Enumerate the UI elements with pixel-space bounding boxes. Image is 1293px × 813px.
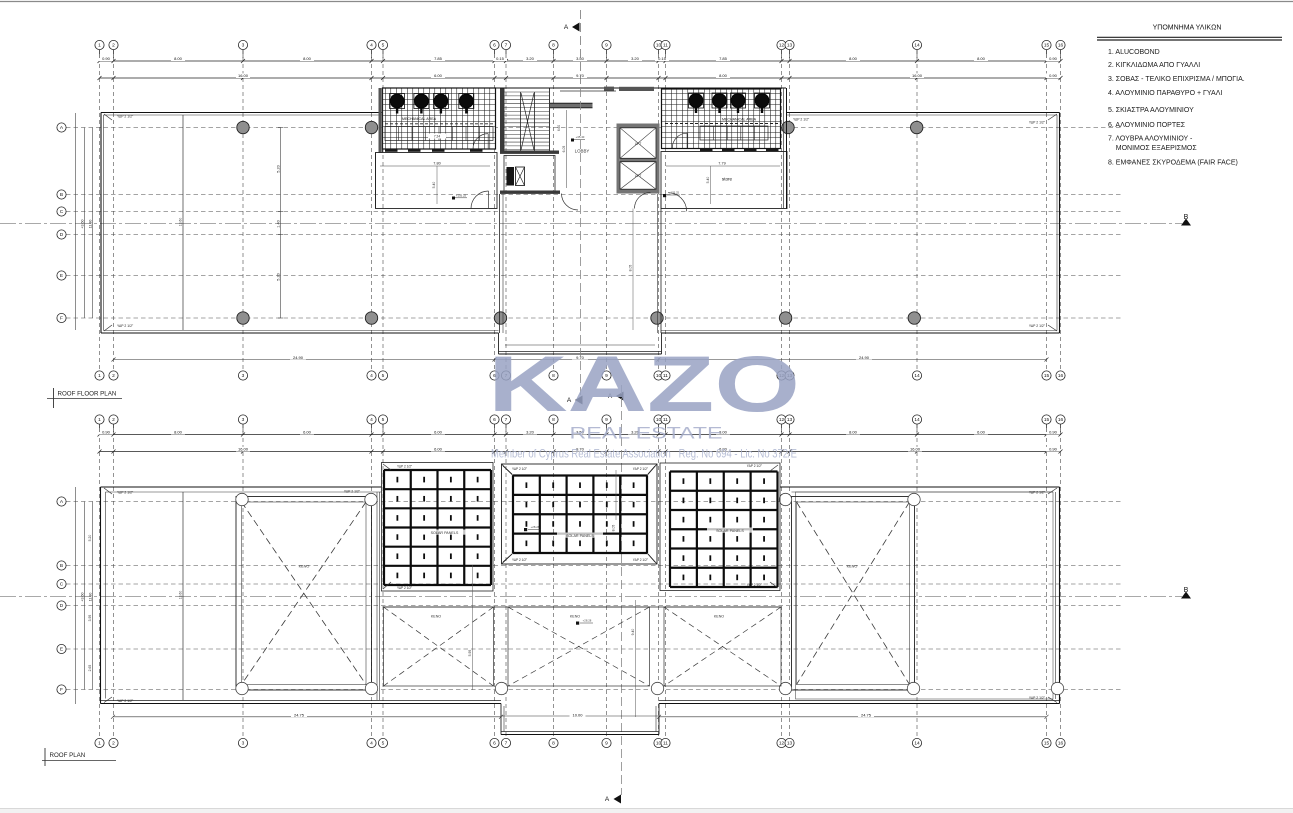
- svg-text:ΥΔΡ 2 1/2": ΥΔΡ 2 1/2": [633, 467, 648, 471]
- svg-text:ΥΔΡ 2 1/2": ΥΔΡ 2 1/2": [117, 115, 134, 119]
- svg-text:14: 14: [914, 43, 920, 49]
- svg-text:4: 4: [370, 741, 373, 747]
- svg-text:SOLAR PANELS: SOLAR PANELS: [716, 529, 744, 533]
- svg-text:2: 2: [112, 741, 115, 747]
- svg-text:ΥΠΟΜΝΗΜΑ ΥΛΙΚΩΝ: ΥΠΟΜΝΗΜΑ ΥΛΙΚΩΝ: [1153, 25, 1222, 32]
- svg-text:24.90: 24.90: [293, 355, 304, 360]
- svg-text:6.00: 6.00: [303, 429, 312, 434]
- svg-text:13: 13: [787, 741, 793, 747]
- svg-text:1: 1: [98, 741, 101, 747]
- svg-text:ΥΔΡ 2 1/2": ΥΔΡ 2 1/2": [1029, 324, 1046, 328]
- svg-text:D: D: [60, 232, 64, 238]
- svg-text:ΥΔΡ 2 1/2": ΥΔΡ 2 1/2": [512, 558, 527, 562]
- svg-text:8.00: 8.00: [849, 56, 858, 61]
- svg-text:16: 16: [1058, 417, 1064, 423]
- svg-text:0.90: 0.90: [1049, 73, 1058, 78]
- svg-text:3: 3: [242, 43, 245, 49]
- svg-text:C: C: [60, 209, 64, 215]
- svg-text:ΜΟΝΙΜΟΣ ΕΞΑΕΡΙΣΜΟΣ: ΜΟΝΙΜΟΣ ΕΞΑΕΡΙΣΜΟΣ: [1108, 145, 1197, 152]
- svg-text:ROOF FLOOR PLAN: ROOF FLOOR PLAN: [58, 391, 117, 398]
- svg-text:2: 2: [112, 417, 115, 423]
- svg-text:6.00: 6.00: [434, 73, 443, 78]
- svg-text:6.05: 6.05: [562, 146, 566, 153]
- svg-text:11: 11: [663, 43, 668, 49]
- svg-text:2: 2: [112, 373, 115, 379]
- svg-text:7: 7: [505, 43, 508, 49]
- svg-text:8.00: 8.00: [303, 56, 312, 61]
- svg-text:16.00: 16.00: [912, 73, 923, 78]
- svg-text:3.20: 3.20: [631, 56, 640, 61]
- svg-text:MECHANICAL AREA: MECHANICAL AREA: [402, 117, 437, 121]
- svg-text:7: 7: [505, 741, 508, 747]
- svg-text:KAZO: KAZO: [488, 339, 800, 428]
- svg-text:KENO: KENO: [714, 615, 724, 619]
- svg-text:B: B: [60, 563, 63, 569]
- svg-text:0.90: 0.90: [102, 429, 111, 434]
- svg-text:8.00: 8.00: [174, 56, 183, 61]
- svg-text:E: E: [60, 273, 63, 279]
- svg-text:A: A: [564, 24, 569, 31]
- svg-text:8: 8: [552, 43, 555, 49]
- svg-text:+105.25: +105.25: [456, 193, 467, 197]
- svg-text:F: F: [60, 687, 63, 693]
- svg-text:3: 3: [242, 741, 245, 747]
- svg-text:1. ALUCOBOND: 1. ALUCOBOND: [1108, 49, 1160, 56]
- svg-text:SOLAR PANELS: SOLAR PANELS: [431, 531, 459, 535]
- svg-text:13.60: 13.60: [179, 591, 183, 600]
- svg-text:2. ΚΙΓΚΛΙΔΩΜΑ ΑΠΟ ΓΥΑΛΛΙ: 2. ΚΙΓΚΛΙΔΩΜΑ ΑΠΟ ΓΥΑΛΛΙ: [1108, 62, 1200, 69]
- svg-text:7.85: 7.85: [434, 56, 443, 61]
- svg-text:+3.60: +3.60: [81, 219, 85, 228]
- svg-text:14: 14: [914, 373, 920, 379]
- svg-text:13: 13: [787, 43, 793, 49]
- svg-text:+3.60: +3.60: [81, 592, 85, 601]
- svg-text:KENO: KENO: [570, 615, 580, 619]
- svg-text:3: 3: [242, 373, 245, 379]
- svg-text:10.00: 10.00: [572, 712, 583, 717]
- svg-text:11.80: 11.80: [89, 220, 93, 229]
- svg-text:LIFT: LIFT: [635, 174, 642, 178]
- svg-text:3.20: 3.20: [526, 56, 535, 61]
- svg-text:LIFT: LIFT: [635, 142, 642, 146]
- svg-text:1: 1: [98, 43, 101, 49]
- svg-text:8.00: 8.00: [849, 429, 858, 434]
- svg-text:15: 15: [1044, 43, 1050, 49]
- svg-text:7.85: 7.85: [719, 56, 728, 61]
- svg-text:4: 4: [370, 417, 373, 423]
- svg-text:8.05: 8.05: [629, 265, 633, 272]
- svg-text:ΥΔΡ 2 1/2": ΥΔΡ 2 1/2": [397, 465, 412, 469]
- svg-text:F: F: [60, 316, 63, 322]
- svg-text:6.60: 6.60: [557, 125, 561, 131]
- svg-text:6.00: 6.00: [434, 446, 443, 451]
- svg-text:ΥΔΡ 2 1/2": ΥΔΡ 2 1/2": [633, 558, 648, 562]
- svg-text:5. ΣΚΙΑΣΤΡΑ ΑΛΟΥΜΙΝΙΟΥ: 5. ΣΚΙΑΣΤΡΑ ΑΛΟΥΜΙΝΙΟΥ: [1108, 107, 1194, 114]
- svg-text:9: 9: [605, 43, 608, 49]
- svg-text:4. ΑΛΟΥΜΙΝΙΟ ΠΑΡΑΘΥΡΟ + ΓΥΑΛΙ: 4. ΑΛΟΥΜΙΝΙΟ ΠΑΡΑΘΥΡΟ + ΓΥΑΛΙ: [1108, 90, 1222, 97]
- svg-text:5: 5: [382, 417, 385, 423]
- svg-text:3: 3: [242, 417, 245, 423]
- svg-text:0.90: 0.90: [1049, 429, 1058, 434]
- svg-text:5.20: 5.20: [88, 535, 92, 542]
- svg-text:12: 12: [779, 741, 785, 747]
- svg-text:12: 12: [779, 43, 785, 49]
- svg-text:0.90: 0.90: [1049, 446, 1058, 451]
- svg-text:6: 6: [493, 741, 496, 747]
- svg-text:C: C: [60, 582, 64, 588]
- svg-text:5.40: 5.40: [432, 182, 436, 189]
- svg-text:15: 15: [1044, 373, 1050, 379]
- svg-text:5: 5: [382, 741, 385, 747]
- svg-text:13.60: 13.60: [179, 218, 183, 227]
- svg-text:B: B: [60, 192, 63, 198]
- svg-text:D: D: [60, 603, 64, 609]
- svg-text:KENO: KENO: [847, 565, 858, 569]
- svg-text:16: 16: [1058, 741, 1064, 747]
- svg-text:5.40: 5.40: [706, 177, 710, 184]
- svg-text:2.65: 2.65: [88, 665, 92, 672]
- svg-text:store: store: [722, 177, 733, 182]
- svg-text:16: 16: [1058, 43, 1064, 49]
- svg-text:8.00: 8.00: [977, 56, 986, 61]
- svg-text:6: 6: [493, 43, 496, 49]
- svg-text:0.90: 0.90: [102, 56, 111, 61]
- svg-text:6.00: 6.00: [434, 429, 443, 434]
- svg-text:14: 14: [914, 741, 920, 747]
- svg-text:2: 2: [112, 43, 115, 49]
- svg-text:24.75: 24.75: [294, 712, 305, 717]
- svg-text:7. ΛΟΥΒΡΑ ΑΛΟΥΜΙΝΙΟΥ -: 7. ΛΟΥΒΡΑ ΑΛΟΥΜΙΝΙΟΥ -: [1108, 136, 1193, 143]
- svg-text:3. ΣΟΒΑΣ - ΤΕΛΙΚΟ ΕΠΙΧΡΙΣΜΑ /: 3. ΣΟΒΑΣ - ΤΕΛΙΚΟ ΕΠΙΧΡΙΣΜΑ / ΜΠΟΓΙΑ.: [1108, 76, 1245, 83]
- svg-text:5: 5: [382, 373, 385, 379]
- svg-text:Member of Cyprus Real Estate A: Member of Cyprus Real Estate Association…: [491, 447, 797, 461]
- svg-text:ΥΔΡ 2 1/2": ΥΔΡ 2 1/2": [793, 118, 810, 122]
- svg-text:ΥΔΡ 2 1/2": ΥΔΡ 2 1/2": [747, 464, 762, 468]
- svg-text:KENO: KENO: [299, 565, 310, 569]
- svg-text:16.00: 16.00: [910, 446, 921, 451]
- svg-text:4: 4: [370, 43, 373, 49]
- svg-text:9: 9: [605, 741, 608, 747]
- svg-text:7.80: 7.80: [433, 162, 440, 166]
- svg-text:7.79: 7.79: [718, 162, 725, 166]
- svg-text:MECHANICAL AREA: MECHANICAL AREA: [722, 118, 757, 122]
- svg-text:6. ΑΛΟΥΜΙΝΙΟ ΠΟΡΤΕΣ: 6. ΑΛΟΥΜΙΝΙΟ ΠΟΡΤΕΣ: [1108, 122, 1186, 129]
- svg-text:6.00: 6.00: [977, 429, 986, 434]
- svg-text:5: 5: [382, 43, 385, 49]
- svg-text:+28.28: +28.28: [583, 619, 592, 623]
- svg-text:ΥΔΡ 2 1/2": ΥΔΡ 2 1/2": [117, 491, 134, 495]
- svg-text:ΥΔΡ 2 1/2": ΥΔΡ 2 1/2": [117, 699, 134, 703]
- svg-text:ΥΔΡ 2 1/2": ΥΔΡ 2 1/2": [512, 467, 527, 471]
- svg-text:15: 15: [1044, 417, 1050, 423]
- svg-text:E: E: [60, 647, 63, 653]
- svg-text:LOBBY: LOBBY: [575, 149, 590, 154]
- svg-text:15: 15: [1044, 741, 1050, 747]
- svg-text:4: 4: [370, 373, 373, 379]
- svg-text:1.40: 1.40: [277, 220, 281, 227]
- svg-text:1: 1: [98, 373, 101, 379]
- svg-text:14: 14: [914, 417, 920, 423]
- svg-text:8. ΕΜΦΑΝΕΣ ΣΚΥΡΟΔΕΜΑ (FAIR FAC: 8. ΕΜΦΑΝΕΣ ΣΚΥΡΟΔΕΜΑ (FAIR FACE): [1108, 160, 1238, 167]
- svg-text:ROOF PLAN: ROOF PLAN: [50, 752, 86, 759]
- svg-text:16: 16: [1058, 373, 1064, 379]
- svg-text:3.20: 3.20: [526, 429, 535, 434]
- svg-text:ΥΔΡ 2 1/2": ΥΔΡ 2 1/2": [1029, 121, 1046, 125]
- svg-text:ΥΔΡ 2 1/2": ΥΔΡ 2 1/2": [1029, 696, 1046, 700]
- svg-text:SOLAR PANELS: SOLAR PANELS: [566, 534, 594, 538]
- svg-text:ΥΔΡ 2 1/2": ΥΔΡ 2 1/2": [397, 586, 412, 590]
- svg-text:8: 8: [552, 741, 555, 747]
- svg-text:KENO: KENO: [431, 615, 441, 619]
- svg-text:5.20: 5.20: [277, 165, 281, 172]
- svg-text:7.24: 7.24: [434, 135, 440, 139]
- svg-text:8.05: 8.05: [612, 525, 616, 532]
- svg-text:3.95: 3.95: [88, 615, 92, 622]
- svg-text:0.15: 0.15: [496, 56, 505, 61]
- svg-text:ΥΔΡ 2 1/2": ΥΔΡ 2 1/2": [344, 490, 361, 494]
- svg-text:1: 1: [98, 417, 101, 423]
- svg-text:16.00: 16.00: [238, 73, 249, 78]
- svg-text:0.90: 0.90: [1049, 56, 1058, 61]
- svg-text:A: A: [605, 796, 610, 803]
- svg-text:ΥΔΡ 2 1/2": ΥΔΡ 2 1/2": [747, 583, 762, 587]
- svg-text:16.00: 16.00: [238, 446, 249, 451]
- svg-text:ΥΔΡ 2 1/2": ΥΔΡ 2 1/2": [117, 324, 134, 328]
- svg-text:+28.28: +28.28: [531, 525, 540, 529]
- svg-text:5.20: 5.20: [277, 273, 281, 280]
- svg-text:24.75: 24.75: [861, 712, 872, 717]
- svg-text:9.40: 9.40: [631, 629, 635, 636]
- svg-text:8.00: 8.00: [174, 429, 183, 434]
- svg-text:8.00: 8.00: [719, 73, 728, 78]
- svg-text:24.90: 24.90: [859, 355, 870, 360]
- svg-text:REAL ESTATE: REAL ESTATE: [570, 424, 723, 443]
- svg-text:11: 11: [663, 741, 668, 747]
- svg-text:5.95: 5.95: [468, 650, 472, 657]
- svg-text:11.80: 11.80: [89, 593, 93, 602]
- svg-text:ΥΔΡ 2 1/2": ΥΔΡ 2 1/2": [1029, 491, 1046, 495]
